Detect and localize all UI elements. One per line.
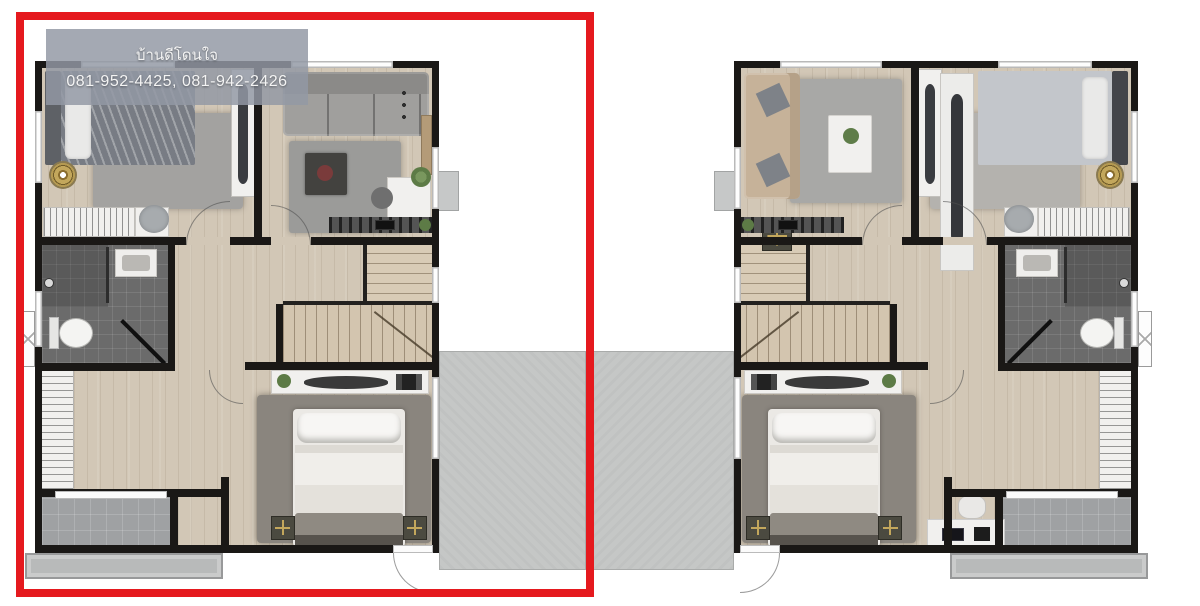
hall-shelf-console [740, 217, 844, 233]
floorplan-canvas: บ้านดีโดนใจ 081-952-4425, 081-942-2426 [0, 0, 1200, 606]
concrete-terrace [585, 351, 734, 570]
coffee-table [828, 115, 872, 173]
sofa-vertical [744, 73, 800, 199]
exterior-wall-right [734, 61, 741, 553]
master-bed-base [770, 535, 878, 545]
stair-railing [806, 245, 810, 305]
window [780, 61, 882, 68]
bathroom-sink [1016, 249, 1058, 277]
table-decor [843, 128, 859, 144]
floorplan-unit-right [734, 61, 1138, 553]
staircase-upper-flight [734, 245, 806, 304]
stair-railing [734, 301, 890, 305]
bedroom2-wardrobe [918, 69, 942, 197]
master-bed [768, 409, 880, 547]
bedroom2-pillow [1082, 77, 1108, 159]
shelf-plant [742, 219, 754, 231]
toilet-tank [1114, 317, 1124, 349]
staircase-lower-flight [734, 304, 890, 364]
room-divider-wall [911, 61, 919, 245]
window [734, 267, 741, 303]
dressing-wardrobe [1099, 367, 1133, 497]
dresser-plant [882, 374, 896, 388]
toilet-bowl [1080, 318, 1114, 348]
bedroom-desk [927, 519, 1005, 547]
watermark-phone-numbers: 081-952-4425, 081-942-2426 [66, 73, 287, 91]
master-bed-duvet [770, 445, 878, 513]
entry-door-opening [740, 545, 780, 553]
window [734, 147, 741, 209]
master-bedroom-wall [944, 477, 952, 553]
desk-gadget [974, 527, 990, 541]
bedroom2-bedside-lamp [1096, 161, 1124, 189]
dresser-items [751, 374, 777, 390]
balcony-door-threshold [1006, 491, 1118, 499]
master-bed-pillows [772, 413, 876, 443]
shower-glass-divider [1064, 247, 1067, 303]
bathroom-wall [998, 363, 1138, 371]
bedroom2-bed [978, 71, 1112, 165]
window [998, 61, 1092, 68]
laptop-item [778, 220, 798, 230]
dresser-mirror [785, 376, 869, 389]
interior-wall-horizontal [734, 237, 1138, 245]
ac-unit-pad [714, 171, 735, 211]
entry-door-swing-arc [740, 553, 780, 593]
toilet [1078, 315, 1124, 351]
side-canister [958, 495, 986, 519]
master-dresser-console [744, 370, 902, 394]
exterior-wall-bottom [734, 545, 1138, 553]
vanity-stool [1004, 205, 1034, 233]
master-bed-throw [770, 513, 878, 537]
window [734, 377, 741, 459]
bedroom2-headboard [1112, 71, 1128, 165]
shower-head [1120, 279, 1128, 287]
window [1131, 291, 1138, 347]
balcony-tile-floor [1003, 497, 1131, 547]
wardrobe-mirror [925, 84, 935, 184]
bathroom-wall [998, 237, 1005, 371]
stair-wall [890, 304, 897, 364]
window [1131, 111, 1138, 183]
vanity-dresser [1038, 207, 1130, 237]
concrete-walkway [950, 553, 1148, 579]
bedside-lamp-left [878, 516, 902, 540]
bathroom-window-symbol [1138, 311, 1152, 367]
shower-area [1065, 245, 1131, 307]
watermark: บ้านดีโดนใจ 081-952-4425, 081-942-2426 [46, 29, 308, 105]
watermark-title: บ้านดีโดนใจ [136, 43, 218, 67]
bedside-lamp-right [746, 516, 770, 540]
master-bedroom-wall [734, 362, 928, 370]
